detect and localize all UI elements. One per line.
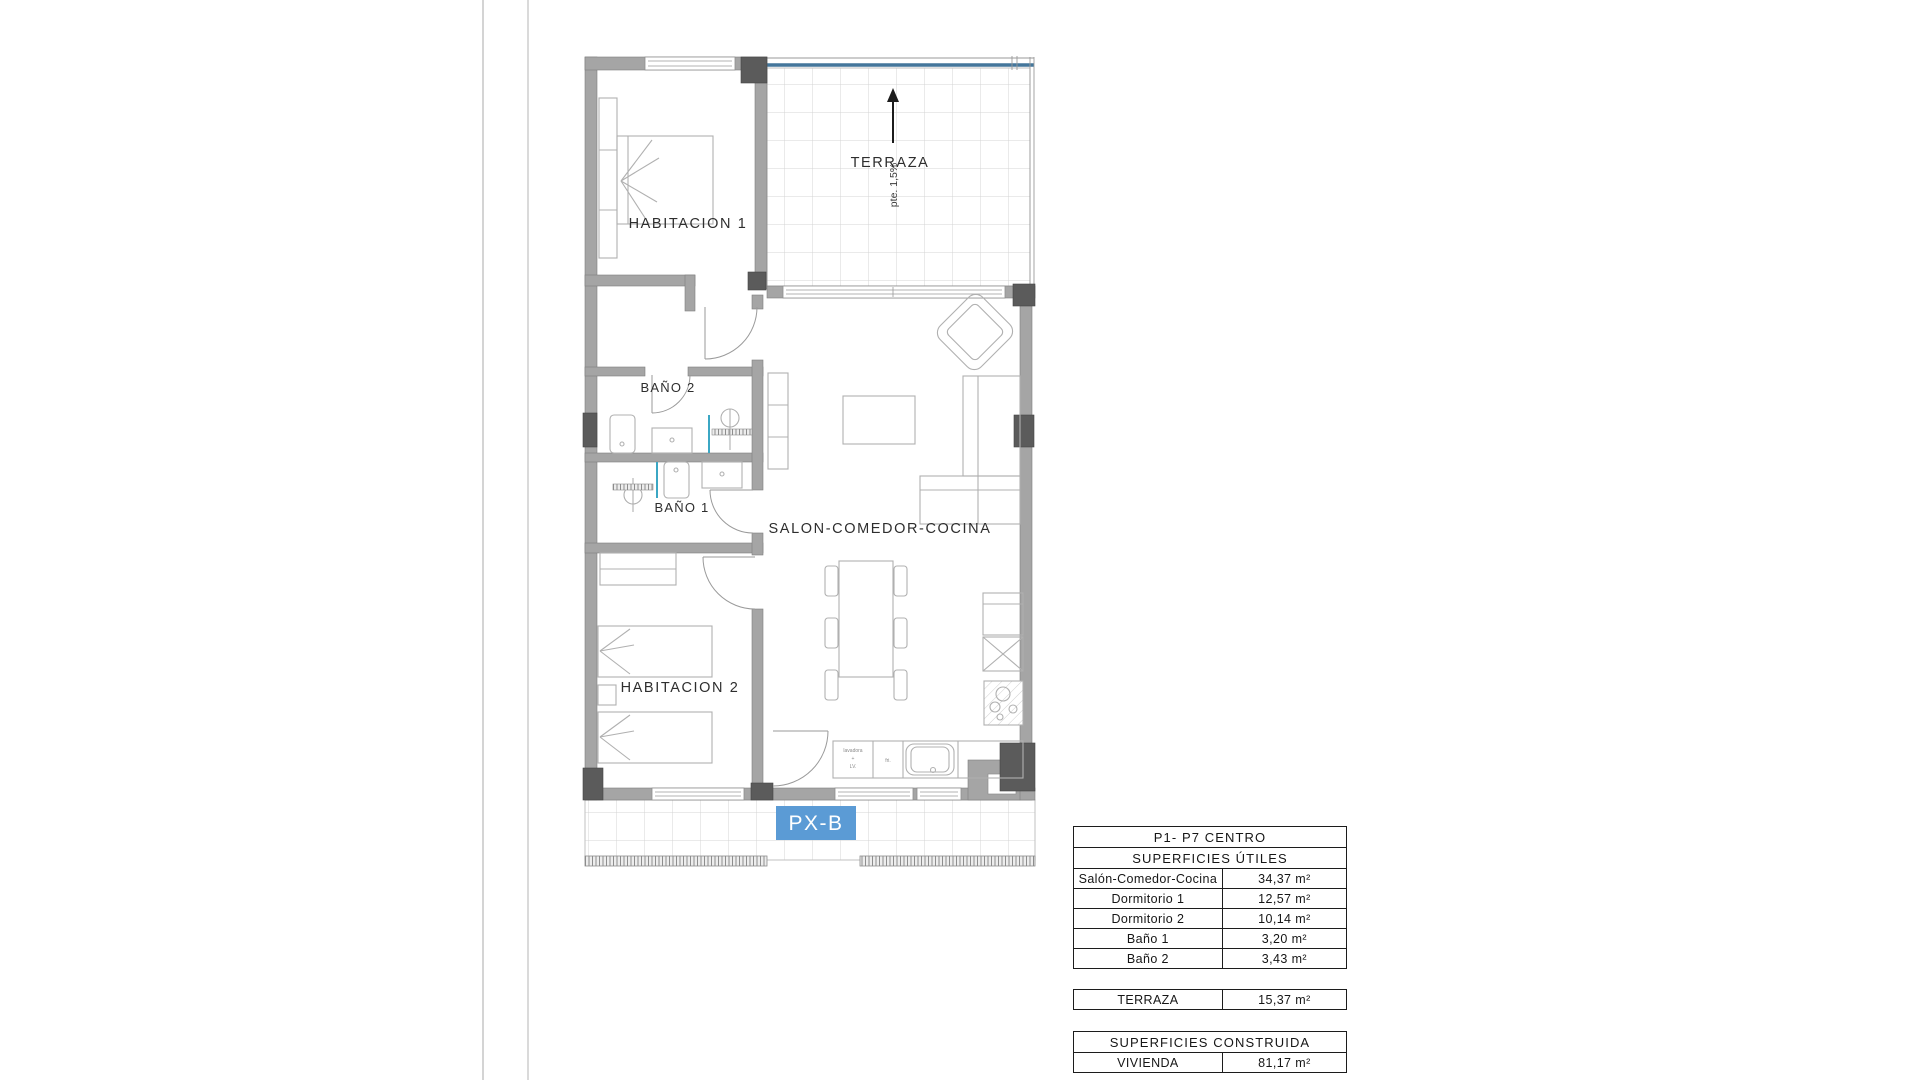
table-row: Salón-Comedor-Cocina 34,37 m² <box>1074 869 1347 889</box>
single-bed <box>598 626 712 677</box>
row-value: 15,37 m² <box>1222 990 1346 1010</box>
row-value: 34,37 m² <box>1222 869 1346 889</box>
room-label-habitacion1: HABITACION 1 <box>629 216 748 232</box>
row-label: VIVIENDA <box>1074 1053 1223 1073</box>
kitchen-tall-units <box>983 593 1023 725</box>
appliance-label: fri. <box>885 758 891 764</box>
row-label: Baño 2 <box>1074 949 1223 969</box>
superficies-construida-table: SUPERFICIES CONSTRUIDA VIVIENDA 81,17 m² <box>1073 1031 1347 1073</box>
table-title: SUPERFICIES CONSTRUIDA <box>1074 1032 1347 1053</box>
row-value: 3,20 m² <box>1222 929 1346 949</box>
furniture-habitacion2 <box>598 553 712 763</box>
row-value: 3,43 m² <box>1222 949 1346 969</box>
walkway-edge-hatch <box>860 856 1035 866</box>
dining-table <box>825 561 907 700</box>
terraza-table: TERRAZA 15,37 m² <box>1073 989 1347 1010</box>
superficies-utiles-table: P1- P7 CENTRO SUPERFICIES ÚTILES Salón-C… <box>1073 826 1347 969</box>
single-bed <box>598 712 712 763</box>
row-value: 81,17 m² <box>1222 1053 1346 1073</box>
window <box>835 788 913 800</box>
terrace-slider <box>783 286 1005 298</box>
row-label: Baño 1 <box>1074 929 1223 949</box>
furniture-habitacion1 <box>599 98 713 258</box>
window <box>652 788 744 800</box>
floorplan-sheet: pte. 1,5% TERRAZA PX-B <box>0 0 1920 1080</box>
unit-badge-label: PX-B <box>788 812 843 835</box>
door-bano1 <box>710 490 753 533</box>
room-label-terraza: TERRAZA <box>851 155 930 171</box>
toilet <box>610 415 635 453</box>
toilet <box>664 462 689 498</box>
room-label-bano2: BAÑO 2 <box>641 380 696 395</box>
row-label: Dormitorio 2 <box>1074 909 1223 929</box>
table-row: TERRAZA 15,37 m² <box>1074 990 1347 1010</box>
tv-unit <box>768 373 788 469</box>
washer-label-2: + <box>852 756 855 762</box>
hob <box>984 681 1023 725</box>
table-row: VIVIENDA 81,17 m² <box>1074 1053 1347 1073</box>
room-label-habitacion2: HABITACION 2 <box>621 680 740 696</box>
table-row: Baño 1 3,20 m² <box>1074 929 1347 949</box>
washer-label-1: lavadora <box>843 748 862 754</box>
coffee-table <box>843 396 915 444</box>
row-label: Salón-Comedor-Cocina <box>1074 869 1223 889</box>
table-subtitle: SUPERFICIES ÚTILES <box>1074 848 1347 869</box>
row-value: 10,14 m² <box>1222 909 1346 929</box>
double-bed <box>617 136 713 224</box>
door-entrance <box>773 731 828 786</box>
table-title: P1- P7 CENTRO <box>1074 827 1347 848</box>
window <box>645 57 735 70</box>
sofa <box>920 376 1020 524</box>
room-label-bano1: BAÑO 1 <box>655 500 710 515</box>
row-value: 12,57 m² <box>1222 889 1346 909</box>
access-walkway: PX-B <box>585 800 1035 866</box>
row-label: Dormitorio 1 <box>1074 889 1223 909</box>
floorplan-drawing: pte. 1,5% TERRAZA PX-B <box>0 0 1920 1080</box>
table-row: Dormitorio 1 12,57 m² <box>1074 889 1347 909</box>
room-label-salon: SALON-COMEDOR-COCINA <box>769 521 992 537</box>
table-row: Baño 2 3,43 m² <box>1074 949 1347 969</box>
vanity <box>652 428 692 453</box>
walkway-edge-hatch <box>585 856 767 866</box>
door-habitacion2 <box>703 557 755 609</box>
terrace: pte. 1,5% TERRAZA <box>767 56 1034 288</box>
armchair <box>933 290 1016 373</box>
area-tables: P1- P7 CENTRO SUPERFICIES ÚTILES Salón-C… <box>1073 826 1347 1073</box>
washer-label-3: LV. <box>850 764 857 770</box>
door-hall <box>705 307 757 359</box>
window <box>917 788 961 800</box>
fixtures-bano2 <box>610 409 752 453</box>
table-row: Dormitorio 2 10,14 m² <box>1074 909 1347 929</box>
vanity <box>702 462 742 488</box>
row-label: TERRAZA <box>1074 990 1223 1010</box>
sheet-fold-lines <box>483 0 528 1080</box>
